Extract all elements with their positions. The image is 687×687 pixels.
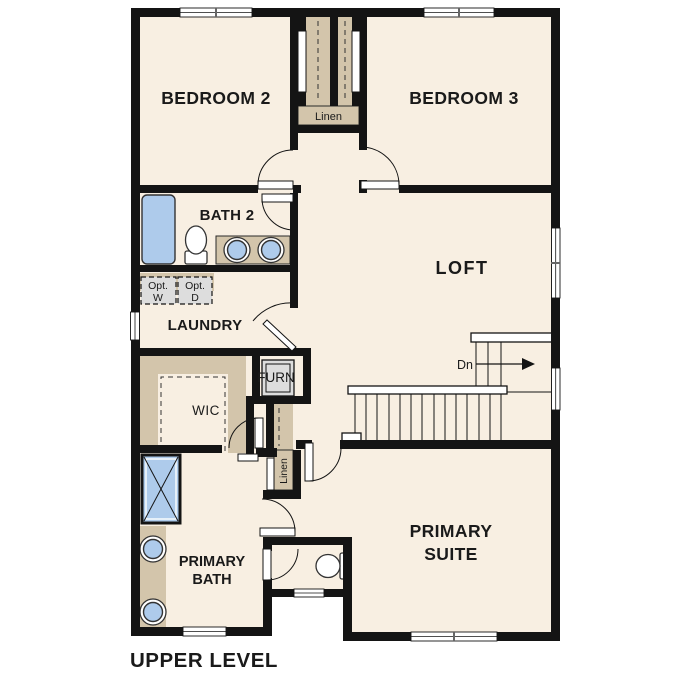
primary-sink2-icon bbox=[144, 603, 163, 622]
stair-railing-end bbox=[342, 433, 361, 441]
label-opt-washer: Opt. bbox=[148, 280, 168, 292]
room-label-loft: LOFT bbox=[436, 258, 489, 278]
laundry-window bbox=[131, 312, 140, 340]
room-label-primary-bath-1: PRIMARY bbox=[179, 554, 246, 570]
floor-plan: BEDROOM 2 BEDROOM 3 Linen BATH 2 LOFT Op… bbox=[0, 0, 687, 687]
label-opt-dryer: Opt. bbox=[185, 280, 205, 292]
bedroom2-closet-door bbox=[298, 31, 306, 92]
wc-toilet-icon bbox=[316, 555, 340, 578]
room-label-bedroom3: BEDROOM 3 bbox=[409, 88, 519, 108]
label-washer: W bbox=[153, 292, 163, 304]
bath2-door bbox=[262, 194, 293, 202]
room-label-primary-suite-1: PRIMARY bbox=[410, 521, 493, 541]
loft-window bbox=[551, 228, 560, 298]
wic-shelf-left bbox=[140, 374, 158, 445]
label-dryer: D bbox=[191, 292, 199, 304]
room-label-bath2: BATH 2 bbox=[200, 207, 255, 224]
page-title: UPPER LEVEL bbox=[130, 649, 278, 672]
primary-sink-icon bbox=[144, 540, 163, 559]
bath2-toilet-icon bbox=[186, 226, 207, 254]
label-furnace: FURN bbox=[257, 370, 295, 385]
room-label-primary-bath-2: BATH bbox=[192, 572, 231, 588]
label-linen-top: Linen bbox=[315, 111, 342, 123]
label-linen-hall: Linen bbox=[278, 458, 290, 484]
room-label-bedroom2: BEDROOM 2 bbox=[161, 88, 271, 108]
bath2-sink-icon bbox=[228, 241, 247, 260]
utility-chase bbox=[274, 404, 293, 450]
room-label-laundry: LAUNDRY bbox=[168, 317, 243, 334]
stair-railing-upper bbox=[471, 333, 552, 342]
room-label-wic: WIC bbox=[192, 403, 220, 418]
primary-bath-door bbox=[260, 528, 295, 536]
bedroom2-door bbox=[258, 181, 293, 189]
bedroom3-window bbox=[424, 8, 494, 17]
primary-bath-window bbox=[183, 627, 226, 636]
bedroom2-window bbox=[180, 8, 252, 17]
shower-icon bbox=[142, 455, 180, 523]
wic-shelf-right bbox=[228, 374, 246, 453]
wc-window bbox=[294, 589, 324, 597]
floor-plan-page: BEDROOM 2 BEDROOM 3 Linen BATH 2 LOFT Op… bbox=[0, 0, 687, 687]
bedroom3-closet-door bbox=[352, 31, 360, 92]
linen-hall-door bbox=[267, 458, 274, 490]
bedroom3-door bbox=[361, 181, 399, 189]
stair-railing-main bbox=[348, 386, 507, 394]
wic-shelf-top bbox=[140, 356, 246, 374]
primary-suite-door bbox=[305, 443, 313, 481]
bath2-sink2-icon bbox=[262, 241, 281, 260]
wic-door-2 bbox=[238, 454, 258, 461]
wic-door bbox=[255, 418, 263, 448]
label-stairs-down: Dn bbox=[457, 358, 473, 372]
stair-landing-window bbox=[552, 368, 561, 410]
bathtub-icon bbox=[142, 195, 175, 264]
primary-suite-window bbox=[411, 632, 497, 641]
wc-door bbox=[263, 549, 271, 580]
room-label-primary-suite-2: SUITE bbox=[424, 544, 478, 564]
